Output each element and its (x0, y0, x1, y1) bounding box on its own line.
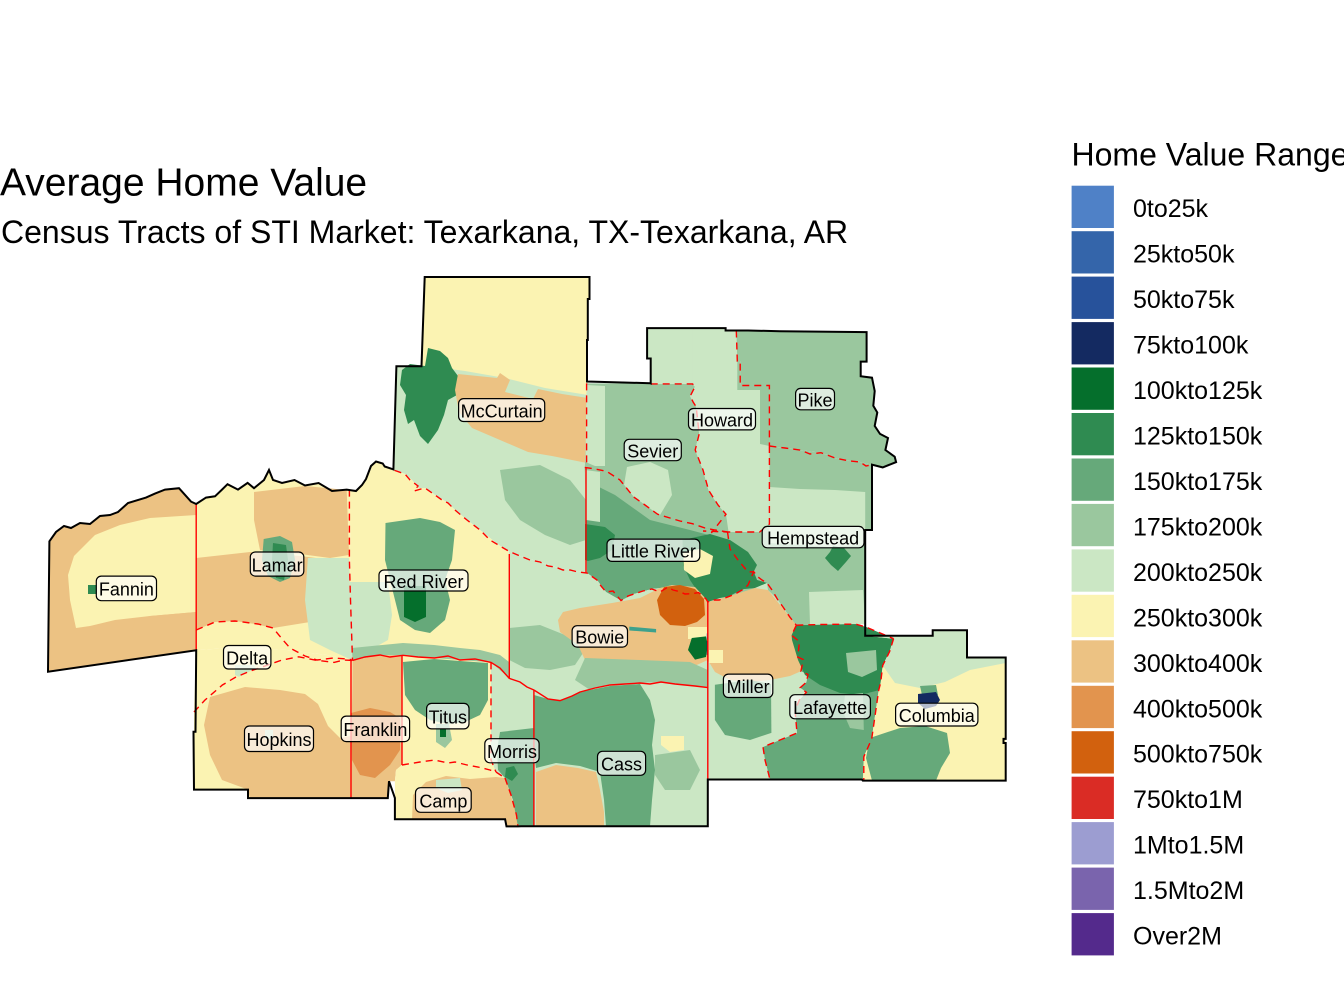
svg-text:Over2M: Over2M (1133, 923, 1222, 951)
svg-text:200kto250k: 200kto250k (1133, 559, 1263, 587)
svg-text:0to25k: 0to25k (1133, 195, 1209, 223)
svg-text:Delta: Delta (226, 649, 269, 669)
svg-text:400kto500k: 400kto500k (1133, 695, 1263, 723)
svg-text:250kto300k: 250kto300k (1133, 604, 1263, 632)
svg-text:McCurtain: McCurtain (461, 401, 543, 421)
svg-text:1.5Mto2M: 1.5Mto2M (1133, 877, 1244, 905)
svg-text:Lamar: Lamar (252, 555, 303, 575)
svg-text:Titus: Titus (429, 707, 467, 727)
svg-text:Red River: Red River (383, 572, 463, 592)
svg-text:Average Home Value: Average Home Value (0, 162, 367, 205)
svg-text:Columbia: Columbia (899, 706, 976, 726)
svg-text:Sevier: Sevier (627, 441, 678, 461)
svg-text:Miller: Miller (727, 677, 770, 697)
svg-text:50kto75k: 50kto75k (1133, 286, 1235, 314)
svg-text:75kto100k: 75kto100k (1133, 332, 1249, 360)
svg-text:Hempstead: Hempstead (767, 528, 859, 548)
svg-text:Howard: Howard (691, 411, 753, 431)
svg-text:Little River: Little River (611, 542, 696, 562)
svg-text:125kto150k: 125kto150k (1133, 423, 1263, 451)
svg-text:Morris: Morris (487, 742, 537, 762)
svg-text:750kto1M: 750kto1M (1133, 786, 1243, 814)
svg-text:Home Value Range: Home Value Range (1072, 136, 1344, 172)
svg-text:175kto200k: 175kto200k (1133, 513, 1263, 541)
svg-text:1Mto1.5M: 1Mto1.5M (1133, 832, 1244, 860)
svg-text:Pike: Pike (797, 390, 832, 410)
svg-text:500kto750k: 500kto750k (1133, 741, 1263, 769)
svg-text:300kto400k: 300kto400k (1133, 650, 1263, 678)
svg-text:Camp: Camp (419, 791, 467, 811)
svg-text:150kto175k: 150kto175k (1133, 468, 1263, 496)
svg-text:Fannin: Fannin (99, 580, 154, 600)
svg-text:100kto125k: 100kto125k (1133, 377, 1263, 405)
svg-text:Bowie: Bowie (575, 628, 624, 648)
svg-text:25kto50k: 25kto50k (1133, 241, 1235, 269)
svg-text:Lafayette: Lafayette (793, 698, 867, 718)
svg-text:Hopkins: Hopkins (246, 730, 311, 750)
svg-text:Census Tracts of STI Market: T: Census Tracts of STI Market: Texarkana, … (1, 214, 848, 250)
svg-text:Cass: Cass (601, 755, 642, 775)
svg-text:Franklin: Franklin (343, 720, 407, 740)
